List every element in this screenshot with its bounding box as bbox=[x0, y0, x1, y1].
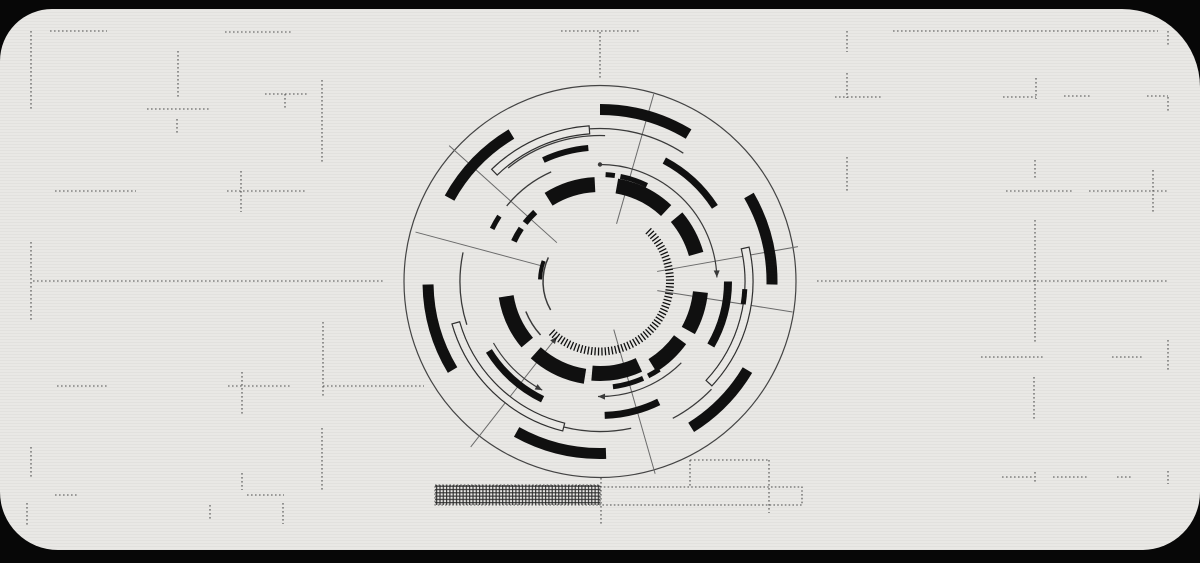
tick-mark bbox=[657, 314, 664, 318]
tick-mark bbox=[664, 262, 672, 264]
tick-mark bbox=[591, 347, 592, 355]
tick-mark bbox=[561, 337, 565, 344]
solid-arc-segment bbox=[688, 292, 700, 330]
solid-arc-segment bbox=[592, 365, 639, 374]
tick-mark bbox=[555, 334, 560, 340]
thin-arc bbox=[507, 172, 551, 206]
tick-mark bbox=[638, 335, 643, 342]
solid-arc-segment bbox=[517, 432, 606, 454]
radial-spoke bbox=[416, 232, 541, 265]
tick-mark bbox=[666, 276, 674, 277]
tick-mark bbox=[567, 341, 571, 348]
solid-arc-segment bbox=[428, 285, 453, 371]
hud-canvas bbox=[0, 0, 1200, 563]
tick-mark bbox=[630, 340, 634, 347]
solid-arc-segment bbox=[605, 402, 659, 415]
tick-mark bbox=[656, 242, 663, 246]
tick-mark bbox=[605, 347, 606, 355]
solid-arc-segment bbox=[600, 110, 689, 135]
outer-ring-circle bbox=[404, 86, 796, 478]
solid-arc-segment bbox=[549, 185, 595, 200]
tick-mark bbox=[664, 266, 672, 268]
solid-arc-segment bbox=[492, 216, 499, 229]
solid-arc-segment bbox=[648, 369, 659, 376]
solid-arc-segment bbox=[606, 175, 615, 176]
tick-mark bbox=[659, 311, 666, 315]
solid-arc-segment bbox=[664, 161, 715, 207]
tick-mark bbox=[660, 252, 667, 255]
solid-arc-segment bbox=[691, 370, 747, 427]
tick-mark bbox=[581, 345, 583, 353]
tick-mark bbox=[588, 347, 589, 355]
tick-mark bbox=[577, 344, 579, 352]
tick-mark bbox=[564, 339, 568, 346]
tick-mark bbox=[635, 337, 639, 344]
tick-mark bbox=[663, 302, 671, 305]
progress-bar-group bbox=[435, 485, 802, 505]
tick-mark bbox=[666, 273, 674, 274]
tick-mark bbox=[654, 320, 661, 325]
tick-mark bbox=[662, 305, 669, 308]
tick-mark bbox=[664, 296, 672, 298]
tick-mark bbox=[658, 245, 665, 249]
tick-mark bbox=[652, 322, 658, 327]
progress-outline-box bbox=[600, 487, 802, 505]
hud-circle-group bbox=[404, 86, 798, 478]
tick-mark bbox=[656, 317, 663, 321]
solid-arc-segment bbox=[506, 296, 527, 342]
thin-arc bbox=[589, 128, 683, 153]
arc-arrowhead bbox=[714, 270, 720, 277]
tick-mark bbox=[664, 299, 672, 301]
tick-mark bbox=[615, 346, 617, 354]
tick-mark bbox=[654, 239, 661, 244]
tick-mark bbox=[624, 343, 627, 350]
tick-mark bbox=[665, 290, 673, 291]
tick-mark bbox=[627, 342, 630, 349]
tick-mark bbox=[558, 336, 563, 343]
tick-mark bbox=[633, 339, 637, 346]
arc-arrowhead bbox=[598, 394, 605, 400]
tick-mark bbox=[641, 334, 646, 340]
solid-arc-segment bbox=[743, 289, 745, 304]
tick-mark bbox=[662, 255, 669, 258]
arc-start-dot bbox=[598, 162, 602, 166]
solid-arc-segment bbox=[652, 340, 680, 366]
solid-arc-segment bbox=[514, 228, 521, 241]
solid-arc-segment bbox=[711, 282, 728, 346]
solid-arc-segment bbox=[543, 148, 588, 160]
outlined-arc-band bbox=[706, 247, 753, 386]
tick-mark bbox=[570, 342, 573, 349]
progress-hatch-fill bbox=[435, 485, 600, 505]
tick-mark bbox=[652, 236, 658, 241]
tick-mark bbox=[611, 347, 612, 355]
thin-arc bbox=[460, 252, 467, 324]
tick-mark bbox=[666, 287, 674, 288]
tick-mark bbox=[621, 344, 624, 352]
thin-arc bbox=[564, 427, 631, 431]
tick-mark bbox=[659, 249, 666, 253]
tick-mark bbox=[660, 308, 667, 311]
tick-mark bbox=[574, 343, 577, 350]
solid-arc-segment bbox=[536, 353, 585, 376]
tick-mark bbox=[584, 346, 586, 354]
tick-mark bbox=[595, 347, 596, 355]
tick-mark bbox=[608, 347, 609, 355]
solid-arc-segment bbox=[677, 217, 697, 254]
tick-mark bbox=[663, 259, 671, 261]
